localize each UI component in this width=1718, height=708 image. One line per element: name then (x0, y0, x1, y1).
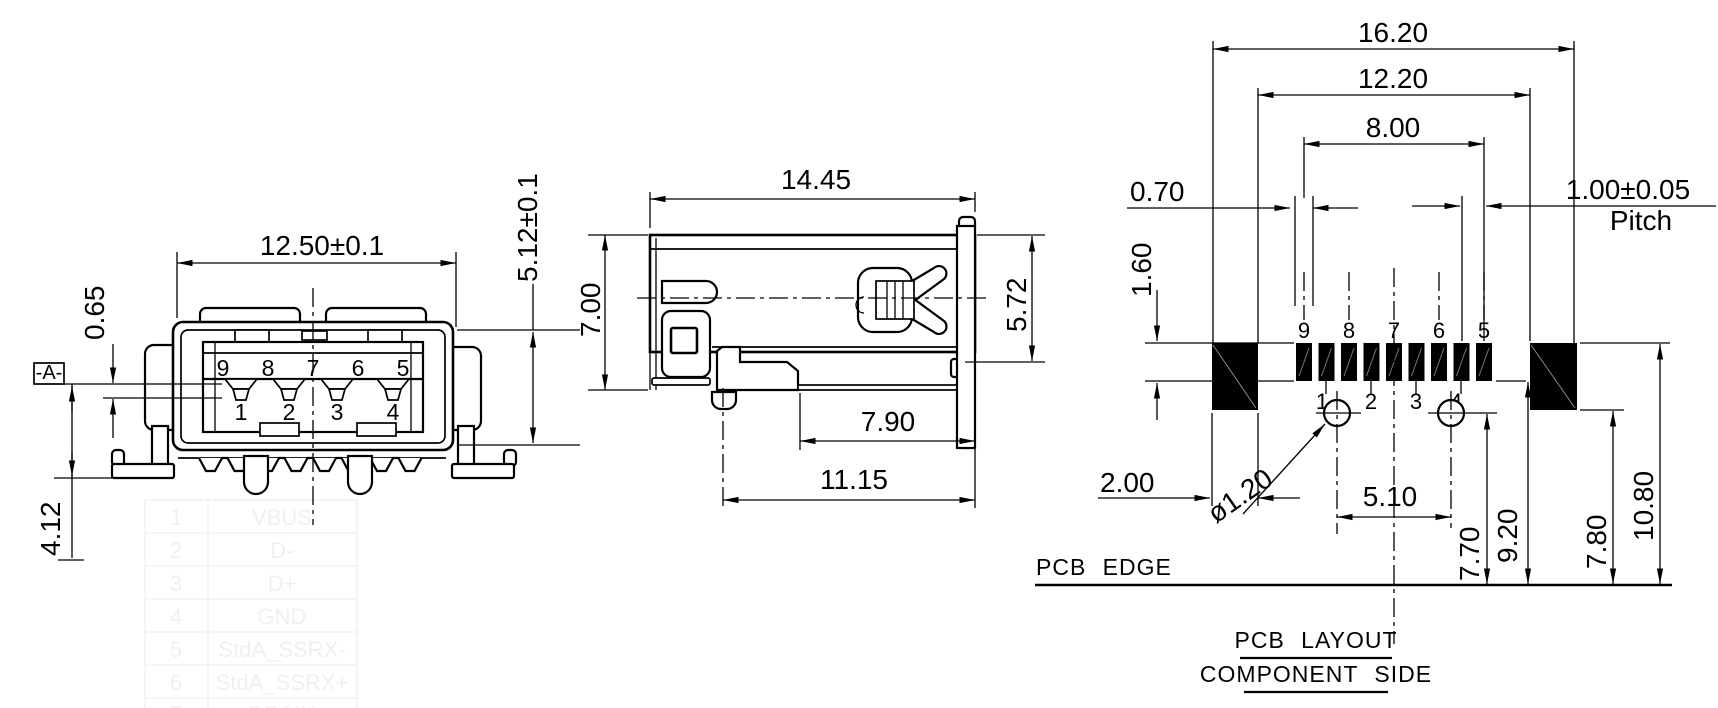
pcb-dim-hole-dia: ø1.20 (1202, 424, 1325, 529)
dim-total-depth-label: 11.15 (820, 464, 888, 495)
side-plate (957, 226, 975, 448)
side-dim-lead-setback: 7.90 (800, 393, 975, 450)
wm-pin-1: 1 (170, 505, 182, 530)
side-dim-height: 7.00 (575, 235, 648, 390)
front-pin-5: 5 (397, 355, 410, 381)
side-bottom-strip (798, 385, 957, 390)
connector-technical-drawing: 1 VBUS 2 D- 3 D+ 4 GND 5 StdA_SSRX- 6 St… (0, 0, 1718, 708)
dim-height-label: 7.00 (575, 283, 606, 338)
front-left-foot (112, 464, 174, 478)
pcb-dim-pad-length: 1.60 (1126, 243, 1294, 421)
dim-front-to-edge-label: 10.80 (1628, 471, 1659, 541)
front-pin-4: 4 (387, 399, 400, 425)
pad-label-6: 6 (1433, 318, 1445, 343)
pad-label-3: 3 (1410, 389, 1422, 414)
pad-label-2: 2 (1365, 389, 1377, 414)
front-pin-2: 2 (283, 399, 296, 425)
front-post-right (348, 456, 372, 494)
dim-mount-pad-width-label: 2.00 (1100, 467, 1155, 498)
pad-label-7: 7 (1388, 318, 1400, 343)
pcb-dim-hole-spacing: 5.10 (1337, 481, 1451, 517)
side-tongue (662, 281, 717, 303)
pcb-dim-mount-to-edge: 7.80 (1580, 410, 1624, 584)
side-lead (717, 347, 798, 390)
dim-shell-depth-label: 5.72 (1001, 278, 1032, 333)
dim-pads-to-edge-label: 9.20 (1492, 509, 1523, 564)
front-pin-7: 7 (307, 355, 320, 381)
pcb-dim-pitch: 1.00±0.05 Pitch (1412, 174, 1716, 341)
pad-label-9: 9 (1298, 318, 1310, 343)
datum-label: -A- (36, 362, 63, 384)
wm-name-1: VBUS (252, 505, 312, 530)
pcb-edge: PCB EDGE (1035, 554, 1672, 585)
dim-lead-setback-label: 7.90 (861, 406, 916, 437)
pad-label-8: 8 (1343, 318, 1355, 343)
pcb-layout-view: 16.20 12.20 8.00 0.70 1.00±0.05 Pitch (1035, 17, 1716, 692)
pad-label-5: 5 (1478, 318, 1490, 343)
dim-pad-width-label: 0.70 (1130, 176, 1185, 207)
pcb-edge-label: PCB EDGE (1036, 554, 1172, 580)
front-pin-6: 6 (352, 355, 365, 381)
front-teeth (199, 458, 422, 471)
pcb-holes (1316, 391, 1497, 534)
front-pin-1: 1 (235, 399, 248, 425)
front-dim-seating-height: 4.12 (35, 384, 112, 560)
side-dim-length: 14.45 (650, 164, 975, 228)
side-block (662, 311, 710, 377)
dim-seating-height-label: 4.12 (35, 502, 66, 557)
dim-contact-offset-label: 0.65 (79, 286, 110, 341)
side-peg (712, 392, 736, 409)
side-view: 14.45 7.00 5.72 7.90 11.15 (575, 164, 1045, 508)
front-dim-contact-offset: 0.65 (79, 286, 113, 439)
wm-pin-5: 5 (170, 637, 182, 662)
dim-hole-spacing-label: 5.10 (1363, 481, 1418, 512)
dim-hole-to-edge-label: 7.70 (1454, 527, 1485, 582)
front-right-foot (452, 464, 514, 478)
wm-name-6: StdA_SSRX+ (216, 670, 349, 695)
front-pin-8: 8 (262, 355, 275, 381)
front-top-cutout-right (368, 330, 402, 342)
pcb-dim-hole-to-edge: 7.70 (1454, 414, 1487, 584)
wm-pin-4: 4 (170, 604, 182, 629)
wm-pin-6: 6 (170, 670, 182, 695)
side-dim-total-depth: 11.15 (723, 396, 975, 508)
pitch-word-label: Pitch (1610, 205, 1672, 236)
front-pin-9: 9 (217, 355, 230, 381)
front-pin-3: 3 (331, 399, 344, 425)
wm-pin-2: 2 (170, 538, 182, 563)
pcb-title-block: PCB LAYOUT COMPONENT SIDE (1200, 627, 1432, 692)
dim-pad-length-label: 1.60 (1126, 243, 1157, 298)
wm-name-2: D- (270, 538, 293, 563)
dim-signal-span-label: 8.00 (1366, 112, 1421, 143)
wm-name-4: GND (258, 604, 307, 629)
dim-inner-span-label: 12.20 (1358, 63, 1428, 94)
dim-hole-dia-label: ø1.20 (1202, 462, 1278, 528)
front-top-cutout-left (235, 330, 269, 342)
watermark-pin-table: 1 VBUS 2 D- 3 D+ 4 GND 5 StdA_SSRX- 6 St… (145, 500, 357, 708)
front-view: 9 8 7 6 5 1 2 3 4 12.50±0.1 -A- 0.65 (34, 173, 580, 560)
dim-total-width-label: 16.20 (1358, 17, 1428, 48)
drawing-canvas: 1 VBUS 2 D- 3 D+ 4 GND 5 StdA_SSRX- 6 St… (0, 0, 1718, 708)
wm-name-5: StdA_SSRX- (218, 637, 345, 662)
dim-pitch-label: 1.00±0.05 (1566, 174, 1690, 205)
wm-name-3: D+ (268, 571, 297, 596)
wm-pin-3: 3 (170, 571, 182, 596)
wm-name-7: DRAIN (248, 702, 316, 708)
front-post-left (244, 456, 268, 494)
dim-mount-to-edge-label: 7.80 (1581, 515, 1612, 570)
dim-width-label: 12.50±0.1 (260, 230, 384, 261)
dim-shell-height-label: 5.12±0.1 (512, 173, 543, 282)
pcb-title: PCB LAYOUT (1235, 627, 1398, 653)
pcb-subtitle: COMPONENT SIDE (1200, 661, 1432, 687)
wm-pin-7: 7 (170, 702, 182, 708)
front-top-cutout-center (302, 331, 327, 340)
pcb-dim-pads-to-edge: 9.20 (1492, 381, 1528, 584)
pcb-dim-pad-width: 0.70 (1127, 176, 1358, 306)
front-left-riser (152, 426, 168, 468)
side-shell (637, 217, 987, 508)
dim-length-label: 14.45 (781, 164, 851, 195)
front-right-riser (458, 426, 474, 468)
